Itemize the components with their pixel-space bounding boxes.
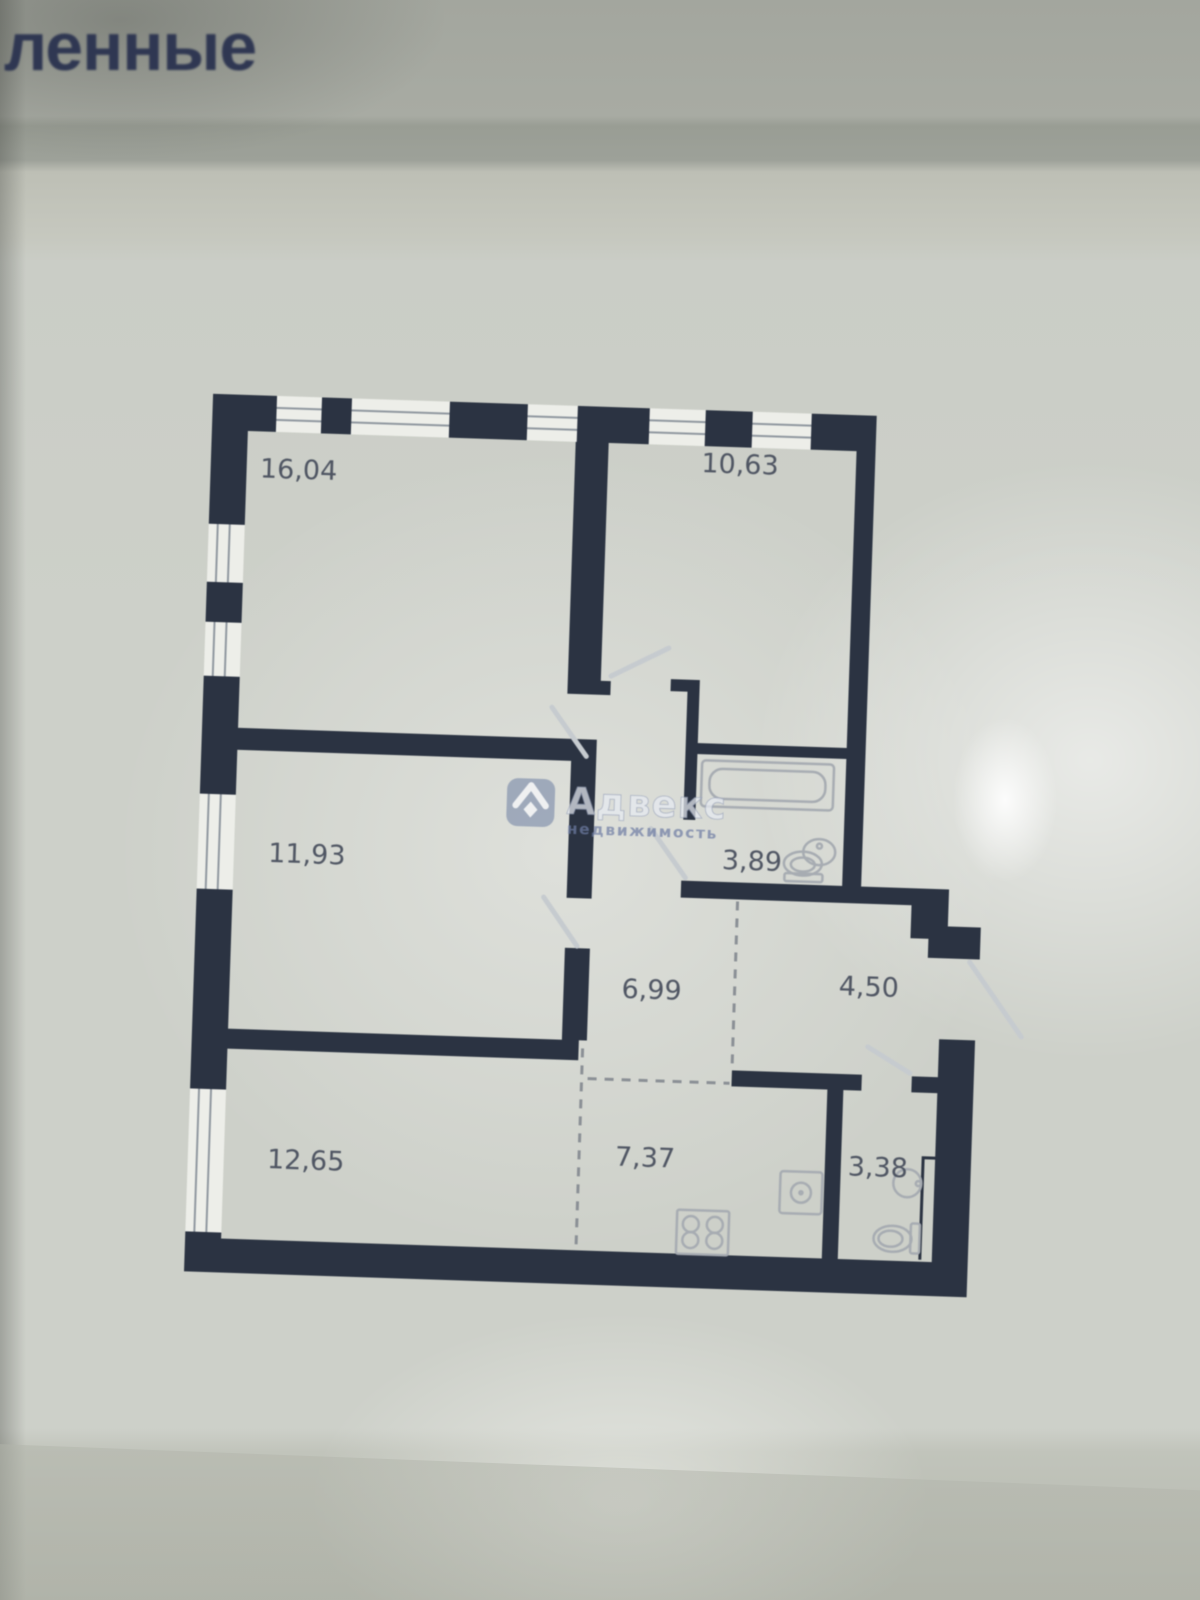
door-swings (538, 644, 1034, 1077)
area-label-corridor: 6,99 (621, 974, 682, 1007)
apartment-floor-plan: 16,04 10,63 11,93 3,89 6,99 4,50 12,65 7… (0, 0, 1200, 1600)
wc-toilet-icon (873, 1222, 920, 1254)
area-label-room-bottom-left: 12,65 (267, 1144, 345, 1178)
watermark: Адвекс недвижимость (506, 778, 728, 843)
area-label-wc: 3,38 (847, 1151, 908, 1184)
zoning-dashed-lines (576, 896, 738, 1253)
area-label-bathroom: 3,89 (721, 845, 782, 878)
area-label-entry-hall: 4,50 (838, 971, 899, 1004)
door-room-top-right (611, 646, 669, 678)
area-label-room-top-right: 10,63 (701, 448, 779, 482)
area-label-kitchen-zone: 7,37 (614, 1142, 675, 1175)
door-wc (867, 1047, 911, 1073)
floor-plan-photo: 16,04 10,63 11,93 3,89 6,99 4,50 12,65 7… (0, 0, 1200, 1600)
stove-icon (676, 1210, 729, 1256)
area-label-room-middle-left: 11,93 (268, 838, 346, 872)
kitchen-sink-icon (779, 1171, 822, 1214)
area-label-room-top-left: 16,04 (259, 453, 337, 487)
screen-photo: ленные (0, 0, 1200, 1600)
entrance-door (967, 962, 1023, 1037)
door-room-middle-left (542, 897, 579, 946)
